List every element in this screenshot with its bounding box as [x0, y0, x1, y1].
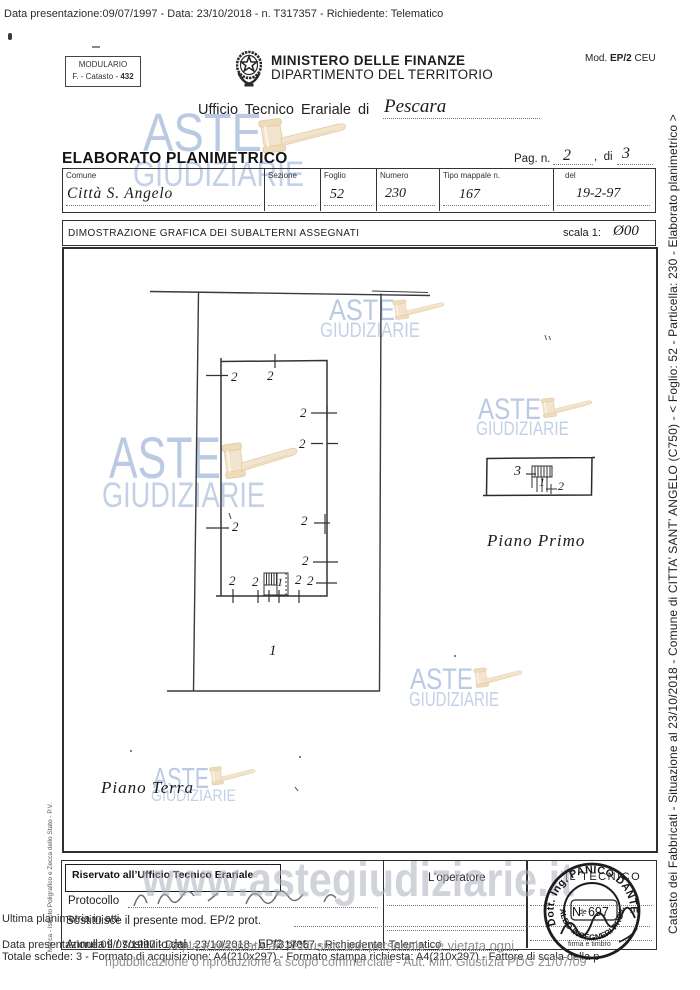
svg-text:www.astegiudiziarie.it: www.astegiudiziarie.it — [141, 854, 574, 907]
svg-text:de: de — [579, 909, 587, 916]
